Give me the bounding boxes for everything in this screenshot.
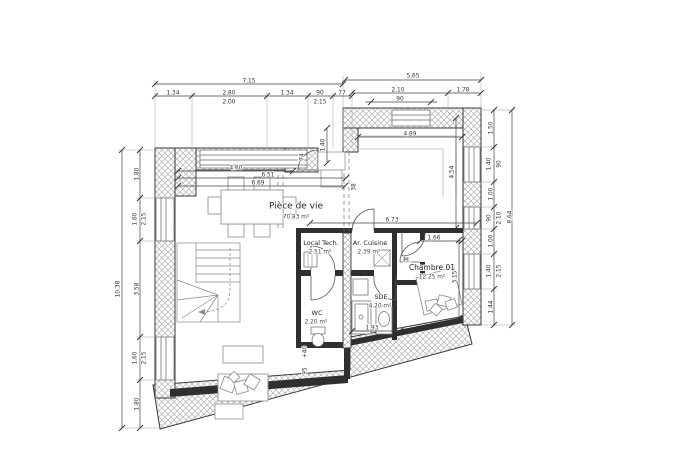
exterior-step <box>215 404 243 419</box>
room-label: Chambre 01 <box>409 263 455 272</box>
window-top-left <box>200 150 307 168</box>
dimension-label: 1.00 <box>489 187 495 200</box>
window-right-1 <box>464 147 480 182</box>
dimension-label: 2.15 <box>142 351 148 364</box>
floor-plan-drawing: 7.155.651.342.802.001.34902.15772.101.78… <box>0 0 700 459</box>
dimension-label: 4.89 <box>404 132 417 138</box>
dimension-label: 6.69 <box>252 181 265 187</box>
room-area-label: 70.83 m² <box>283 214 309 221</box>
spine-wall <box>343 233 351 348</box>
dimension-label: 38 <box>352 183 358 191</box>
dimension-label: 1.66 <box>428 236 441 242</box>
dimension-label: 5.65 <box>407 74 420 80</box>
dimension-label: 1.78 <box>457 88 470 94</box>
window-left-lower <box>156 337 174 380</box>
dimension-label: 77 <box>338 91 346 97</box>
kitchen-door <box>352 209 374 231</box>
coffee-table <box>223 346 263 363</box>
sofa <box>218 371 268 401</box>
window-right-door <box>464 207 480 229</box>
dimension-label: 90 <box>316 91 324 97</box>
dimension-label: 1.50 <box>489 121 495 134</box>
dimension-label: 1.40 <box>487 264 493 277</box>
room-area-label: 4.20 m² <box>369 303 392 310</box>
window-right-2 <box>464 254 480 289</box>
dimension-label: 95 <box>303 367 309 375</box>
window-left-upper <box>156 198 174 241</box>
dimension-label: 10.38 <box>116 280 122 297</box>
dimension-label: 4.60 <box>230 166 243 172</box>
doors <box>298 150 425 300</box>
toilet-icon <box>311 327 325 347</box>
dimension-label: 1.44 <box>489 300 495 313</box>
dimension-label: 7.15 <box>243 79 256 85</box>
dimension-label: 1.80 <box>135 167 141 180</box>
dimension-label: 2.00 <box>223 100 236 106</box>
room-area-label: 2.20 m² <box>305 319 328 326</box>
staircase <box>177 243 240 322</box>
dimension-label: 1.60 <box>133 351 139 364</box>
dimension-label: 2.15 <box>314 100 327 106</box>
dimension-label: +40 <box>303 346 309 359</box>
dimension-label: 90 <box>396 97 404 103</box>
room-area-label: 12.25 m² <box>419 274 445 281</box>
dimension-label: 6.51 <box>262 173 275 179</box>
dimension-label: 1.40 <box>321 138 327 151</box>
dimension-label: 90 <box>487 214 493 222</box>
dimension-label: 4.54 <box>450 165 456 178</box>
dimension-label: 2.15 <box>497 264 503 277</box>
floor-plan-canvas: 7.155.651.342.802.001.34902.15772.101.78… <box>0 0 700 459</box>
room-label: Ar. Cuisine <box>353 239 387 247</box>
dimension-label: 2.15 <box>142 212 148 225</box>
dimension-label: 74 <box>300 153 306 161</box>
dimension-label: 1.93 <box>366 326 379 332</box>
room-label: SDE <box>374 293 387 301</box>
dimension-label: 90 <box>497 160 503 168</box>
room-label: Pièce de vie <box>269 201 324 212</box>
dimension-label: 1.34 <box>281 91 294 97</box>
dimension-label: 2.80 <box>223 91 236 97</box>
dimension-label: 1.60 <box>133 212 139 225</box>
washer-sde <box>353 279 368 295</box>
dimension-label: 2.10 <box>497 211 503 224</box>
dimension-label: 6.73 <box>386 218 399 224</box>
room-label: WC <box>312 309 323 317</box>
dimension-label: 1.00 <box>489 234 495 247</box>
wc-door <box>311 276 335 300</box>
room-area-label: 2.51 m² <box>309 249 332 256</box>
window-top-right <box>392 110 430 126</box>
dimension-label: 3.15 <box>453 270 459 283</box>
dimension-label: 3.58 <box>135 282 141 295</box>
dimension-label: 2.10 <box>392 88 405 94</box>
dimension-label: 1.40 <box>487 157 493 170</box>
dimension-label: 8.64 <box>508 210 514 223</box>
kitchen-counter <box>360 136 456 197</box>
room-label: Local Tech. <box>303 239 339 247</box>
dimension-label: 1.80 <box>135 397 141 410</box>
dimension-label: 1.34 <box>167 91 180 97</box>
room-area-label: 2.39 m² <box>358 249 381 256</box>
